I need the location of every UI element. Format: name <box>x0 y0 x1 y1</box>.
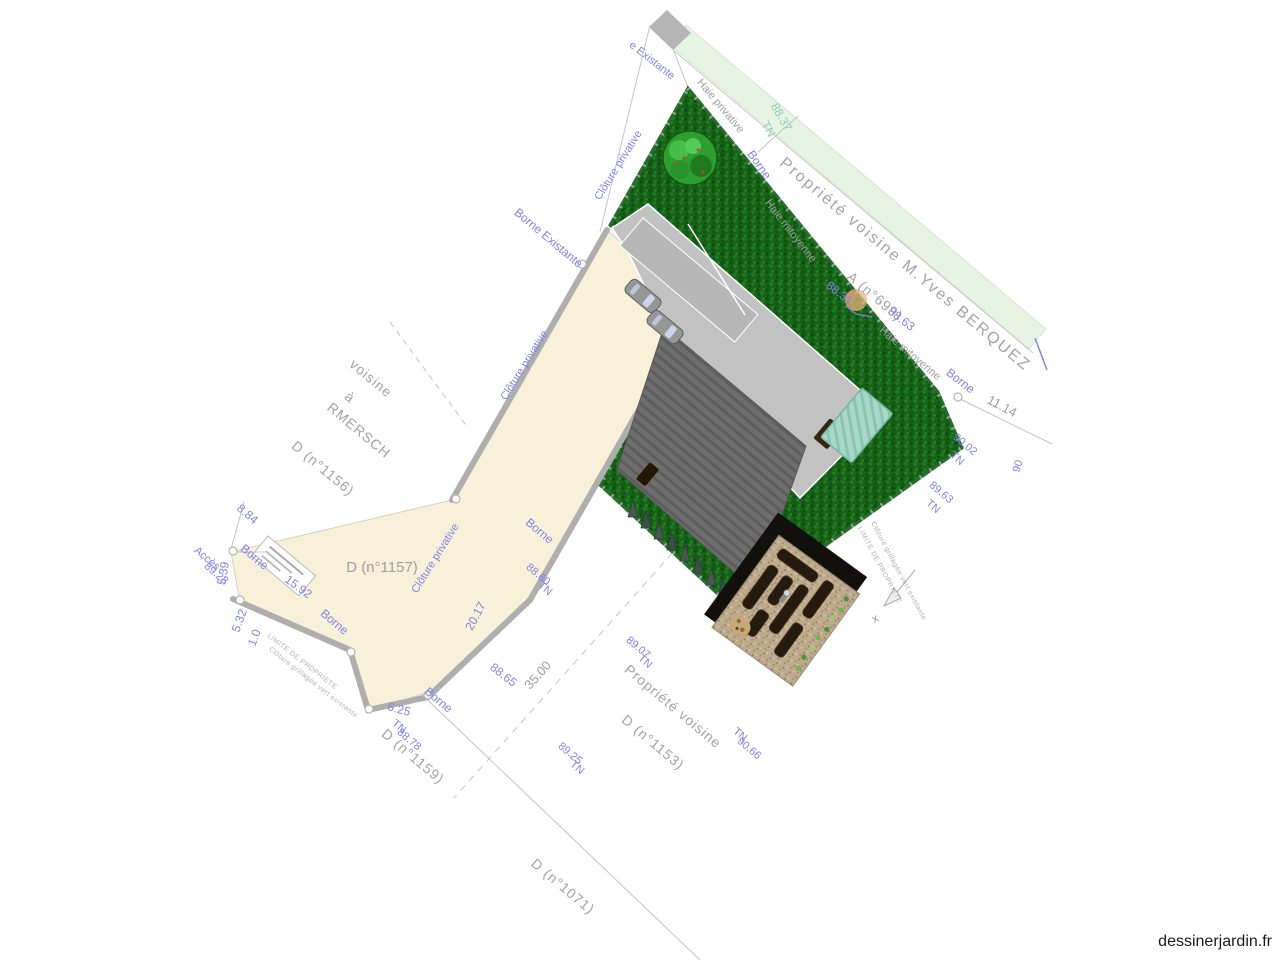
label-borne-existante: Borne Existante <box>512 205 586 270</box>
label-d1071: D (n°1071) <box>528 855 598 917</box>
site-plan-canvas: Propriété voisine M.Yves BERQUEZ A (n°69… <box>0 0 1280 960</box>
boundary-corner-line <box>1035 338 1047 370</box>
garden-plan-page: Propriété voisine M.Yves BERQUEZ A (n°69… <box>0 0 1280 960</box>
label-11-14: 11.14 <box>985 392 1020 420</box>
label-1-0: 1.0 <box>245 627 264 648</box>
label-90: 90 <box>1011 459 1026 474</box>
label-90-66: 90.66 <box>735 735 764 762</box>
watermark: dessinerjardin.fr <box>1158 933 1273 950</box>
tree-icon <box>663 131 717 185</box>
label-tn-7: TN <box>923 497 942 516</box>
label-rmersch-4: D (n°1156) <box>289 437 358 499</box>
label-cloture-grillagee-1: Clôture grillagée vert existante <box>267 646 358 720</box>
borne-marker <box>236 596 244 604</box>
borne-marker <box>347 648 355 656</box>
label-d1157: D (n°1157) <box>346 559 418 576</box>
borne-marker <box>229 547 237 555</box>
label-borne-6: Borne <box>944 365 978 396</box>
label-rmersch-2: à <box>342 388 359 406</box>
borne-marker <box>365 705 373 713</box>
label-cloture-grillagee-2: Clôture grillagée vert existante <box>869 521 927 622</box>
label-5-32: 5.32 <box>229 607 250 634</box>
dashed-borne-line <box>390 322 468 428</box>
label-x-marker: x <box>869 611 881 626</box>
label-d1153-2: D (n°1153) <box>619 711 688 773</box>
label-rmersch-3: RMERSCH <box>324 399 394 461</box>
label-35-00: 35.00 <box>521 658 554 692</box>
borne-marker <box>452 495 460 503</box>
borne-marker <box>954 393 962 401</box>
label-88-65: 88.65 <box>487 660 520 690</box>
